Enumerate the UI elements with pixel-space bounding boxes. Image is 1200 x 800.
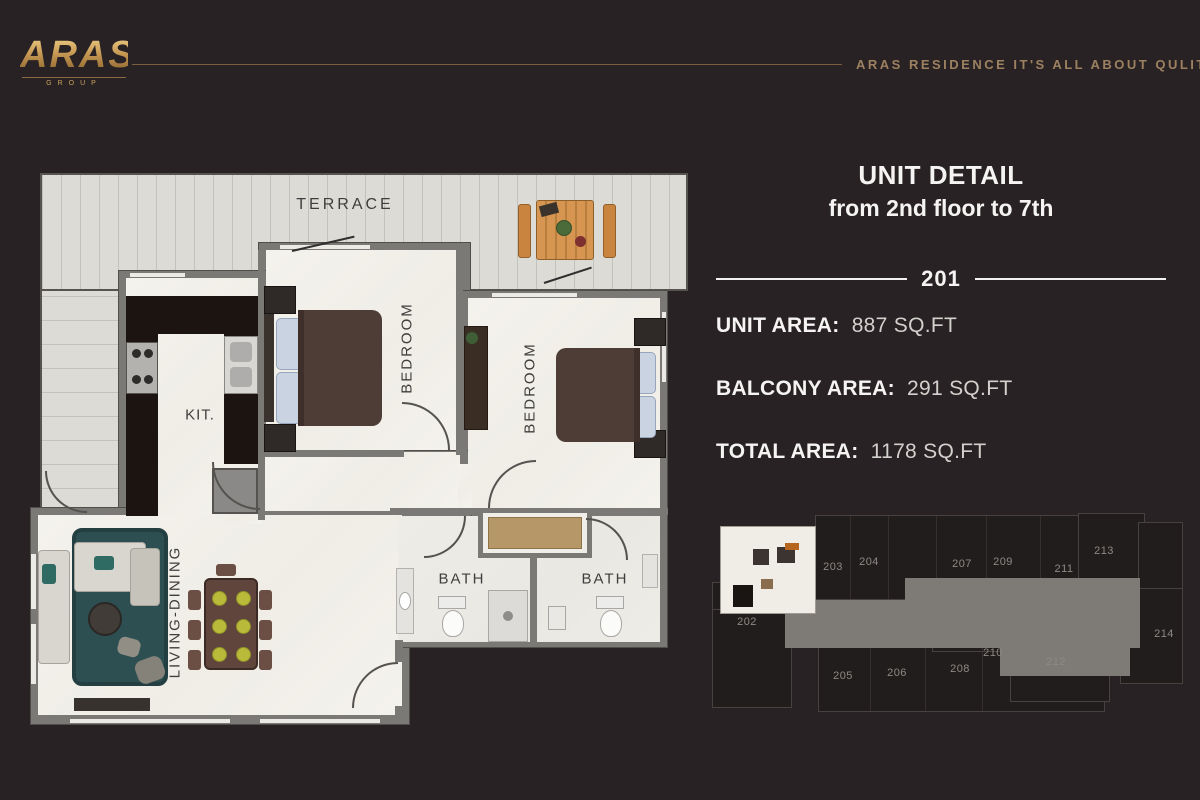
- bench: [603, 204, 616, 258]
- unit-number-row: 201: [716, 266, 1166, 292]
- chair: [259, 590, 272, 610]
- minimap-unit-208: 208: [950, 663, 970, 675]
- label-bath1: BATH: [439, 571, 486, 588]
- minimap-block: [1138, 522, 1183, 594]
- window: [492, 293, 577, 297]
- unit-detail-panel: UNIT DETAIL from 2nd floor to 7th 201 UN…: [716, 160, 1166, 503]
- minimap-divider: [888, 516, 889, 599]
- minimap-unit-210: 210: [983, 647, 1003, 659]
- minimap-divider: [870, 639, 871, 711]
- logo-underline: [22, 77, 126, 78]
- header-tagline: ARAS RESIDENCE IT'S ALL ABOUT QULITY: [856, 57, 1200, 72]
- label-bath2: BATH: [582, 571, 629, 588]
- area-rows: UNIT AREA: 887 SQ.FT BALCONY AREA: 291 S…: [716, 314, 1166, 464]
- blanket: [556, 348, 640, 442]
- label-kitchen: KIT.: [185, 407, 215, 424]
- balcony-area-label: BALCONY AREA:: [716, 377, 895, 400]
- label-terrace: TERRACE: [296, 196, 393, 214]
- headboard: [264, 314, 274, 422]
- plate: [236, 647, 251, 662]
- window: [130, 273, 185, 277]
- nightstand: [264, 286, 296, 314]
- minimap-highlighted-unit-201: [720, 526, 816, 614]
- minimap-corridor: [905, 578, 1140, 602]
- chair: [259, 650, 272, 670]
- vanity: [642, 554, 658, 588]
- nightstand: [264, 424, 296, 452]
- hall-floor: [265, 452, 465, 511]
- cushion: [42, 564, 56, 584]
- sink-icon: [224, 336, 258, 394]
- brand-logo: ARAS GROUP: [20, 36, 128, 87]
- window: [280, 245, 370, 249]
- window: [260, 719, 380, 723]
- brand-name: ARAS: [20, 36, 128, 74]
- label-living: LIVING-DINING: [167, 546, 184, 679]
- total-area-row: TOTAL AREA: 1178 SQ.FT: [716, 440, 1166, 464]
- plate: [212, 647, 227, 662]
- panel-title: UNIT DETAIL: [716, 160, 1166, 191]
- plate: [212, 591, 227, 606]
- toilet-icon: [442, 610, 464, 637]
- toilet-tank: [438, 596, 466, 609]
- header-divider-line: [132, 64, 842, 65]
- plant-icon: [466, 332, 478, 344]
- label-bedroom2: BEDROOM: [522, 342, 539, 434]
- minimap-corridor: [785, 600, 1140, 648]
- basin-icon: [399, 592, 411, 610]
- plate: [212, 619, 227, 634]
- plant-icon: [556, 220, 572, 236]
- brand-subtitle: GROUP: [20, 80, 128, 87]
- wall-entry-step-top: [395, 640, 403, 662]
- nightstand: [634, 318, 666, 346]
- chair: [188, 590, 201, 610]
- minimap-unit-209: 209: [993, 556, 1013, 568]
- minimap-unit-205: 205: [833, 670, 853, 682]
- chair: [188, 650, 201, 670]
- chair: [259, 620, 272, 640]
- unit-area-label: UNIT AREA:: [716, 314, 840, 337]
- divider-line: [975, 278, 1166, 280]
- minimap-unit-213: 213: [1094, 545, 1114, 557]
- drain-icon: [503, 611, 513, 621]
- minimap-unit-206: 206: [887, 667, 907, 679]
- minimap-divider: [850, 516, 851, 599]
- tv-stand: [74, 698, 150, 711]
- minimap-unit-214: 214: [1154, 628, 1174, 640]
- coffee-table: [88, 602, 122, 636]
- plate: [236, 591, 251, 606]
- stove-icon: [126, 342, 158, 394]
- balcony-area-row: BALCONY AREA: 291 SQ.FT: [716, 377, 1166, 401]
- chair: [188, 620, 201, 640]
- minimap-unit-212: 212: [1046, 656, 1066, 668]
- floor-minimap: 202203204207209211213214205206208210212: [710, 508, 1188, 720]
- total-area-value: 1178 SQ.FT: [871, 440, 987, 463]
- toilet-icon: [600, 610, 622, 637]
- closet-interior: [488, 517, 582, 549]
- balcony-area-value: 291 SQ.FT: [907, 377, 1012, 400]
- minimap-unit-202: 202: [737, 616, 757, 628]
- unit-area-value: 887 SQ.FT: [852, 314, 957, 337]
- chair: [216, 564, 236, 576]
- basin-icon: [548, 606, 566, 630]
- bench: [518, 204, 531, 258]
- floor-plan: TERRACE BEDROOM BEDROOM KIT. LIVING-DINI…: [30, 162, 700, 746]
- plate: [575, 236, 586, 247]
- bedroom2-doorway: [458, 464, 472, 508]
- cushion: [94, 556, 114, 570]
- minimap-unit-207: 207: [952, 558, 972, 570]
- divider-line: [716, 278, 907, 280]
- counter: [126, 296, 258, 334]
- window: [70, 719, 230, 723]
- minimap-unit-211: 211: [1054, 563, 1073, 575]
- window: [31, 624, 36, 684]
- label-bedroom1: BEDROOM: [399, 302, 416, 394]
- minimap-unit-204: 204: [859, 556, 879, 568]
- toilet-tank: [596, 596, 624, 609]
- minimap-unit-203: 203: [823, 561, 843, 573]
- minimap-divider: [925, 639, 926, 711]
- unit-area-row: UNIT AREA: 887 SQ.FT: [716, 314, 1166, 338]
- window: [31, 554, 36, 609]
- panel-subtitle: from 2nd floor to 7th: [716, 195, 1166, 222]
- blanket: [298, 310, 382, 426]
- plate: [236, 619, 251, 634]
- sofa-chaise: [130, 548, 160, 606]
- wall-entry-step-bottom: [395, 706, 403, 722]
- total-area-label: TOTAL AREA:: [716, 440, 859, 463]
- unit-number: 201: [921, 266, 961, 292]
